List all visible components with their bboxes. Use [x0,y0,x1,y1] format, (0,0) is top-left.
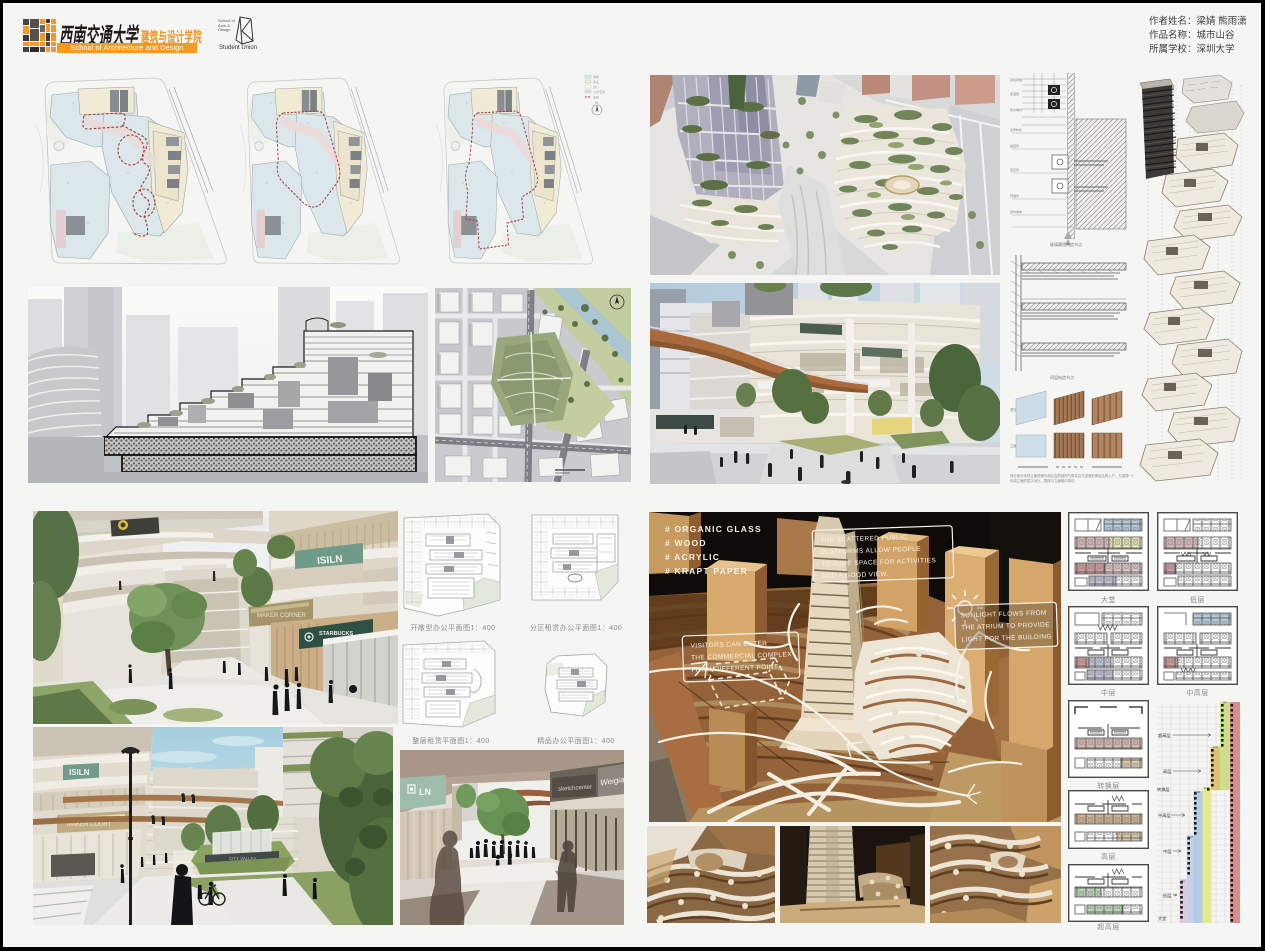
svg-text:商业部分体现立面舒缓平和且富质感的气质并且与波浪形体结合的入: 商业部分体现立面舒缓平和且富质感的气质并且与波浪形体结合的入户，与裙楼一层 [1010,473,1133,478]
svg-text:预埋件: 预埋件 [1010,193,1019,198]
svg-text:# KRAPT PAPER: # KRAPT PAPER [665,566,748,576]
svg-text:# ACRYLIC: # ACRYLIC [665,552,720,562]
svg-text:防水卷材: 防水卷材 [1010,107,1022,112]
svg-text:低层: 低层 [1163,892,1171,899]
svg-text:F24: F24 [1204,786,1210,790]
svg-text:ISILN: ISILN [69,768,90,777]
svg-text:中层: 中层 [1163,848,1171,855]
svg-text:绿地: 绿地 [593,74,599,79]
svg-text:转换层: 转换层 [1157,786,1170,793]
svg-text:F22: F22 [1195,790,1201,794]
svg-text:高层: 高层 [1163,768,1171,775]
svg-text:铝板幕墙: 铝板幕墙 [1010,77,1022,82]
svg-text:F12: F12 [1188,835,1194,839]
svg-text:商业: 商业 [593,79,599,84]
svg-text:F32: F32 [1213,745,1219,749]
svg-text:N: N [596,101,599,105]
svg-text:锚固件: 锚固件 [1010,143,1019,148]
svg-text:公共空间: 公共空间 [593,89,605,94]
svg-text:立面: 立面 [1010,443,1016,448]
svg-text:ISILN: ISILN [317,554,343,567]
svg-text:四层构造节点: 四层构造节点 [1050,374,1074,380]
svg-text:LN: LN [419,787,431,797]
svg-text:办公: 办公 [593,84,599,89]
svg-text:MAKER CORNER: MAKER CORNER [257,613,307,619]
svg-text:流线: 流线 [593,95,599,100]
svg-text:连接件: 连接件 [1010,167,1019,172]
svg-text:玻璃幕墙构造节点: 玻璃幕墙构造节点 [1050,241,1082,247]
svg-text:结构墙体: 结构墙体 [1010,209,1022,214]
svg-text:超高层: 超高层 [1158,732,1171,739]
svg-text:大堂: 大堂 [1158,915,1166,922]
svg-text:# WOOD: # WOOD [665,538,707,548]
svg-text:F4: F4 [1181,879,1185,883]
svg-text:龙骨构件: 龙骨构件 [1010,127,1022,132]
svg-text:中高层: 中高层 [1158,812,1171,819]
svg-text:透光: 透光 [1010,407,1017,412]
svg-text:RF: RF [1223,701,1227,705]
svg-text:# ORGANIC GLASS: # ORGANIC GLASS [665,524,762,534]
svg-text:形成立面的层次对比，整体与立面融中带动: 形成立面的层次对比，整体与立面融中带动 [1010,478,1075,483]
svg-text:保温层: 保温层 [1010,91,1019,96]
